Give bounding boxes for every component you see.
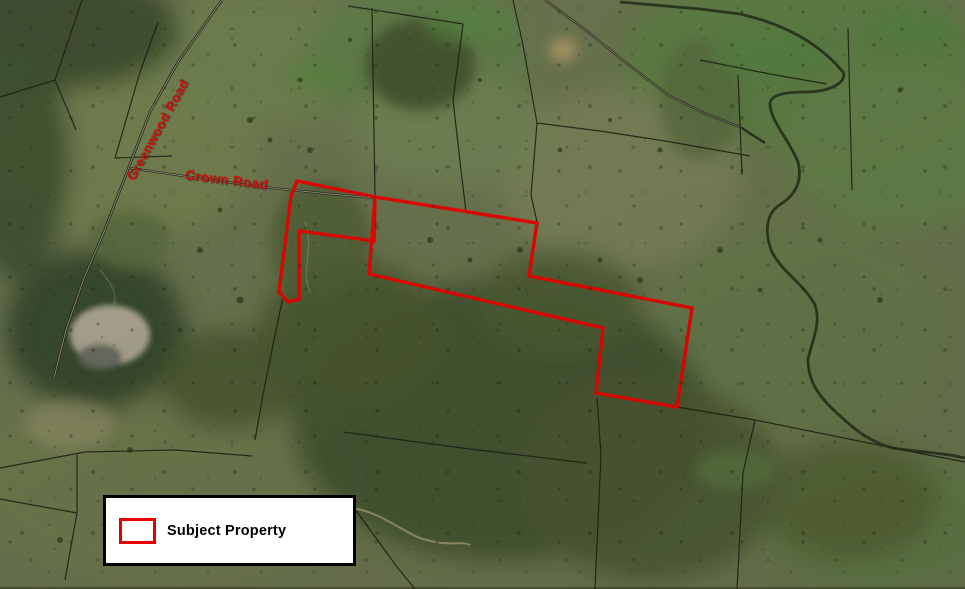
legend: Subject Property xyxy=(103,495,356,566)
aerial-map-figure: Greenwood Road Crown Road Subject Proper… xyxy=(0,0,965,589)
legend-label-subject-property: Subject Property xyxy=(167,523,286,539)
legend-swatch-subject-property xyxy=(119,518,156,544)
